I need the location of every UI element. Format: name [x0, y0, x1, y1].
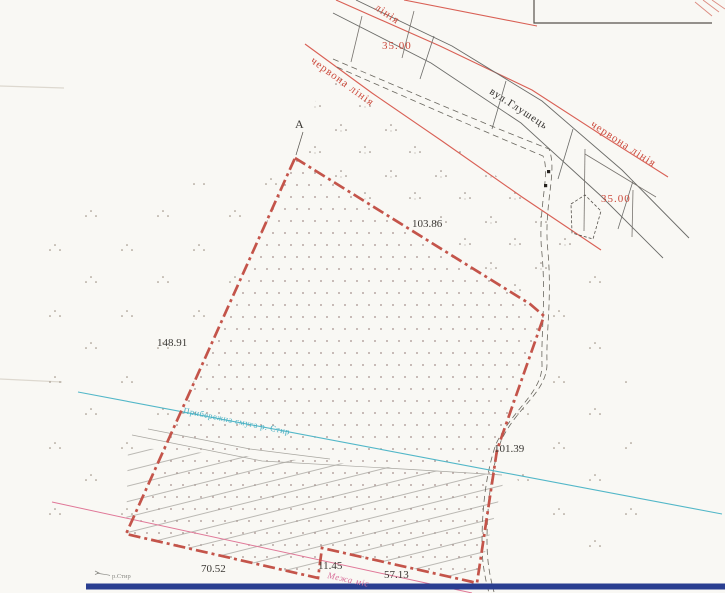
survey-marker-square — [547, 170, 550, 173]
street-name-label: вул.Глушець — [487, 86, 549, 132]
width-dimension-lines-top — [351, 11, 414, 62]
dimension-west: 148.91 — [157, 337, 187, 349]
bottom-blue-bar — [86, 584, 725, 590]
plan-drawing: лінія червона лінія червона лінія вул.Гл… — [0, 0, 725, 593]
corner-red-hatch — [695, 0, 725, 16]
street-width-right: 35.00 — [601, 193, 631, 205]
dimension-east: 101.39 — [494, 443, 525, 455]
frame-corner-line — [534, 0, 712, 23]
river-name-label: р.Стир — [112, 573, 131, 580]
river-arrow — [95, 571, 110, 576]
dimension-south-east: 57.13 — [384, 569, 409, 581]
street-width-top: 35.00 — [382, 40, 412, 52]
dimension-south-west: 70.52 — [201, 563, 226, 575]
cadastral-plan-scan: лінія червона лінія червона лінія вул.Гл… — [0, 0, 725, 593]
point-a-label: А — [295, 117, 304, 131]
dimension-north: 103.86 — [412, 218, 443, 230]
survey-marker-square — [544, 184, 547, 187]
